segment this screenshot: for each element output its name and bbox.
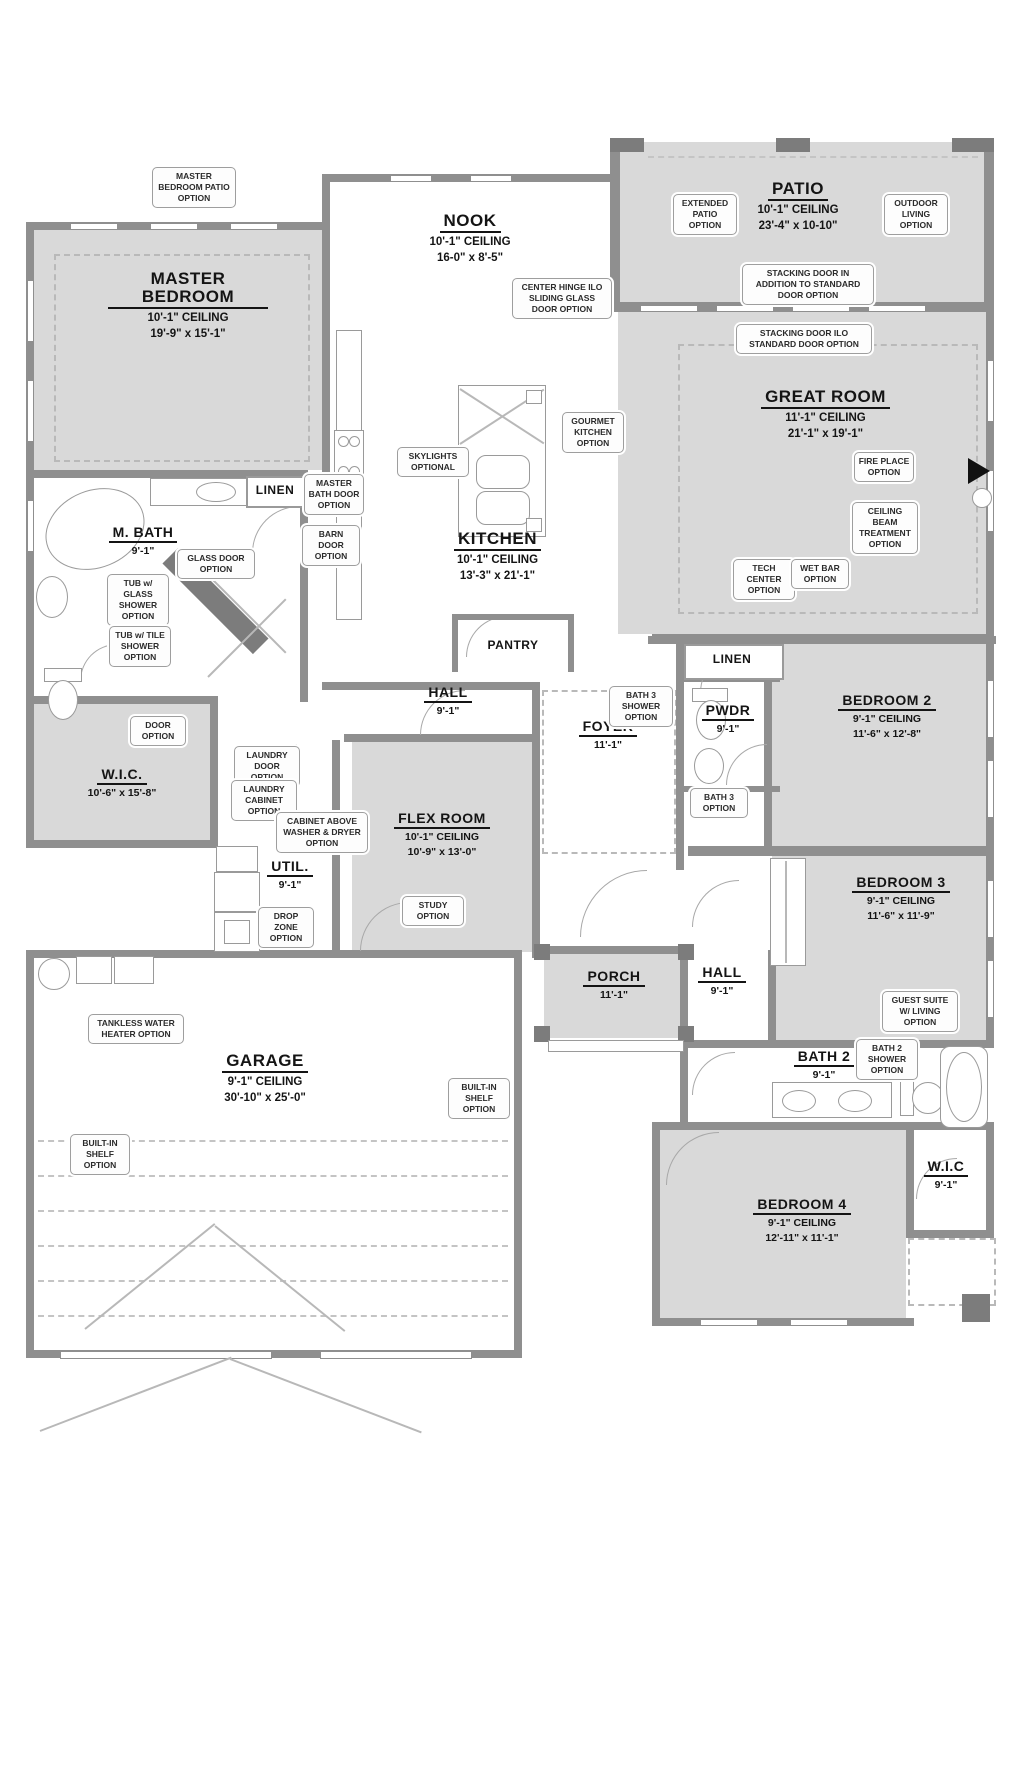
callout-bath2-shower-option: BATH 2 SHOWER OPTION (856, 1039, 918, 1080)
window (390, 175, 432, 182)
room-dims: 11'-6" x 12'-8" (812, 728, 962, 741)
room-name: BATH 2 (794, 1049, 855, 1067)
room-name: PATIO (768, 180, 828, 201)
room-ceiling: 9'-1" (684, 985, 760, 998)
wall-segment (210, 696, 218, 846)
garage-door (320, 1351, 472, 1359)
room-ceiling: 11'-1" CEILING (738, 411, 913, 425)
callout-tub-tile-shower-option: TUB w/ TILE SHOWER OPTION (109, 626, 171, 667)
window (470, 175, 512, 182)
callout-bath3-option: BATH 3 OPTION (690, 788, 748, 818)
room-name: BEDROOM 3 (852, 875, 949, 893)
callout-master-bath-door-option: MASTER BATH DOOR OPTION (304, 474, 364, 515)
wall-segment (676, 640, 684, 870)
room-name: FLEX ROOM (394, 811, 490, 829)
callout-skylights-option: SKYLIGHTS OPTIONAL (397, 447, 469, 477)
door-arc (252, 506, 299, 553)
room-ceiling: 9'-1" CEILING (722, 1217, 882, 1230)
room-dims: 21'-1" x 19'-1" (738, 427, 913, 441)
room-ceiling: 10'-1" CEILING (420, 553, 575, 567)
room-label-util: UTIL. 9'-1" (248, 858, 332, 892)
sliding-door (792, 305, 850, 312)
wall-segment (688, 846, 994, 856)
room-label-pantry: PANTRY (458, 636, 568, 654)
room-ceiling: 10'-1" CEILING (722, 203, 874, 217)
callout-guest-suite-option: GUEST SUITE W/ LIVING OPTION (882, 991, 958, 1032)
room-ceiling: 9'-1" CEILING (826, 895, 976, 908)
sink (36, 576, 68, 618)
closet-rod (785, 861, 787, 963)
room-name: NOOK (440, 212, 501, 233)
burner (338, 436, 349, 447)
callout-outdoor-living-option: OUTDOOR LIVING OPTION (884, 194, 948, 235)
callout-cabinet-washer-option: CABINET ABOVE WASHER & DRYER OPTION (276, 812, 368, 853)
callout-gourmet-kitchen-option: GOURMET KITCHEN OPTION (562, 412, 624, 453)
wall-segment (652, 1126, 660, 1326)
sliding-door (640, 305, 698, 312)
window (987, 880, 994, 938)
porch-column (534, 944, 550, 960)
wall-segment (514, 950, 522, 1358)
window (27, 380, 34, 442)
wall-segment (26, 840, 218, 848)
room-ceiling: 9'-1" CEILING (180, 1075, 350, 1089)
room-label-linen-hall: LINEN (688, 650, 776, 668)
window (230, 223, 278, 230)
room-name: BEDROOM 4 (753, 1197, 850, 1215)
wall-segment (532, 682, 540, 958)
callout-drop-zone-option: DROP ZONE OPTION (258, 907, 314, 948)
room-ceiling: 11'-1" (566, 989, 662, 1002)
window (790, 1319, 848, 1326)
room-label-bedroom3: BEDROOM 3 9'-1" CEILING 11'-6" x 11'-9" (826, 874, 976, 923)
room-dims: 11'-6" x 11'-9" (826, 910, 976, 923)
callout-glass-door-option: GLASS DOOR OPTION (177, 549, 255, 579)
bedroom2-area (772, 644, 986, 846)
room-name: HALL (424, 685, 471, 703)
window (27, 500, 34, 552)
door-arc (580, 870, 647, 937)
room-name: PWDR (702, 703, 755, 721)
callout-barn-door-option: BARN DOOR OPTION (302, 525, 360, 566)
closet (770, 858, 806, 966)
wall-segment (648, 636, 996, 644)
toilet (48, 680, 78, 720)
sink (694, 748, 724, 784)
room-ceiling: 9'-1" CEILING (812, 713, 962, 726)
callout-master-patio-option: MASTER BEDROOM PATIO OPTION (152, 167, 236, 208)
floor-plan: MASTER BEDROOM 10'-1" CEILING 19'-9" x 1… (0, 0, 1024, 1787)
room-label-bedroom2: BEDROOM 2 9'-1" CEILING 11'-6" x 12'-8" (812, 692, 962, 741)
island-sink (476, 455, 530, 489)
callout-extended-patio-option: EXTENDED PATIO OPTION (673, 194, 737, 235)
window (987, 680, 994, 738)
section-marker-arrow (968, 458, 990, 484)
room-ceiling: 9'-1" (686, 723, 770, 736)
wall-segment (322, 178, 330, 478)
patio-pillar (952, 138, 994, 152)
sink (196, 482, 236, 502)
room-name: GREAT ROOM (761, 388, 890, 409)
wall-segment (652, 1318, 914, 1326)
callout-stacking-addition-option: STACKING DOOR IN ADDITION TO STANDARD DO… (742, 264, 874, 305)
section-marker-circle (972, 488, 992, 508)
room-dims: 13'-3" x 21'-1" (420, 569, 575, 583)
callout-bath3-shower-option: BATH 3 SHOWER OPTION (609, 686, 673, 727)
island-sink (476, 491, 530, 525)
callout-center-hinge-option: CENTER HINGE ILO SLIDING GLASS DOOR OPTI… (512, 278, 612, 319)
wall-segment (986, 1126, 994, 1238)
sliding-door (868, 305, 926, 312)
room-name: BEDROOM 2 (838, 693, 935, 711)
sink (782, 1090, 816, 1112)
room-label-linen-master: LINEN (248, 481, 302, 499)
window (700, 1319, 758, 1326)
driveway-line (38, 1175, 508, 1177)
room-label-patio: PATIO 10'-1" CEILING 23'-4" x 10-10" (722, 180, 874, 234)
room-label-porch: PORCH 11'-1" (566, 968, 662, 1002)
wall-segment (452, 614, 574, 620)
room-label-flex-room: FLEX ROOM 10'-1" CEILING 10'-9" x 13'-0" (372, 810, 512, 859)
room-label-kitchen: KITCHEN 10'-1" CEILING 13'-3" x 21'-1" (420, 530, 575, 584)
callout-tankless-option: TANKLESS WATER HEATER OPTION (88, 1014, 184, 1044)
sliding-door (716, 305, 774, 312)
callout-door-option: DOOR OPTION (130, 716, 186, 746)
room-label-nook: NOOK 10'-1" CEILING 16-0" x 8'-5" (395, 212, 545, 266)
room-name: M. BATH (109, 525, 178, 543)
wall-segment (568, 614, 574, 672)
bathtub-inner (946, 1052, 982, 1122)
room-name: W.I.C (924, 1159, 969, 1177)
door-arc (726, 744, 767, 785)
driveway-line (38, 1245, 508, 1247)
burner (349, 436, 360, 447)
patio-pillar (610, 138, 644, 152)
room-label-pwdr: PWDR 9'-1" (686, 702, 770, 736)
room-dims: 16-0" x 8'-5" (395, 251, 545, 265)
window (150, 223, 198, 230)
window (987, 960, 994, 1018)
wall-segment (906, 1230, 994, 1238)
callout-builtin-shelf-left-option: BUILT-IN SHELF OPTION (70, 1134, 130, 1175)
room-name: LINEN (709, 653, 756, 667)
driveway-line (38, 1280, 508, 1282)
room-name: GARAGE (222, 1052, 308, 1073)
driveway-line (38, 1315, 508, 1317)
room-name: PORCH (583, 969, 644, 987)
room-ceiling: 11'-1" (558, 739, 658, 752)
room-dims: 10'-6" x 15'-8" (52, 787, 192, 800)
room-ceiling: 10'-1" CEILING (372, 831, 512, 844)
driveway-line (38, 1210, 508, 1212)
room-ceiling: 9'-1" (400, 705, 496, 718)
room-label-hall-bed: HALL 9'-1" (684, 964, 760, 998)
callout-stacking-ilo-option: STACKING DOOR ILO STANDARD DOOR OPTION (736, 324, 872, 354)
island-corner (526, 390, 542, 404)
room-name: MASTER BEDROOM (108, 270, 268, 309)
hatch-square (962, 1294, 990, 1322)
room-dims: 23'-4" x 10-10" (722, 219, 874, 233)
room-dims: 12'-11" x 11'-1" (722, 1232, 882, 1245)
room-name: PANTRY (484, 639, 543, 653)
patio-edge-dashed (648, 156, 978, 158)
door-arc (692, 880, 739, 927)
driveway-apex-line (40, 1357, 232, 1432)
room-label-hall-center: HALL 9'-1" (400, 684, 496, 718)
wall-segment (344, 734, 540, 742)
window (987, 360, 994, 422)
room-ceiling: 9'-1" (248, 879, 332, 892)
patio-pillar (776, 138, 810, 152)
room-ceiling: 10'-1" CEILING (395, 235, 545, 249)
sink (838, 1090, 872, 1112)
callout-tech-center-option: TECH CENTER OPTION (733, 559, 795, 600)
wall-segment (26, 950, 34, 1358)
callout-wet-bar-option: WET BAR OPTION (791, 559, 849, 589)
room-label-bedroom4: BEDROOM 4 9'-1" CEILING 12'-11" x 11'-1" (722, 1196, 882, 1245)
room-name: LINEN (252, 484, 299, 498)
dryer-drum (224, 920, 250, 944)
room-label-garage: GARAGE 9'-1" CEILING 30'-10" x 25'-0" (180, 1052, 350, 1106)
room-label-wic-bed4: W.I.C 9'-1" (908, 1158, 984, 1192)
callout-ceiling-beam-option: CEILING BEAM TREATMENT OPTION (852, 502, 918, 554)
callout-fireplace-option: FIRE PLACE OPTION (854, 452, 914, 482)
porch-column (678, 944, 694, 960)
room-ceiling: 10'-1" CEILING (108, 311, 268, 325)
equipment-box (114, 956, 154, 984)
porch-step (548, 1040, 684, 1052)
window (27, 280, 34, 342)
room-label-wic-master: W.I.C. 10'-6" x 15'-8" (52, 766, 192, 800)
equipment-box (76, 956, 112, 984)
room-name: W.I.C. (97, 767, 146, 785)
wall-segment (538, 946, 694, 954)
room-dims: 19'-9" x 15'-1" (108, 327, 268, 341)
callout-study-option: STUDY OPTION (402, 896, 464, 926)
window (987, 760, 994, 818)
water-heater (38, 958, 70, 990)
room-ceiling: 9'-1" (908, 1179, 984, 1192)
room-dims: 30'-10" x 25'-0" (180, 1091, 350, 1105)
room-name: HALL (698, 965, 745, 983)
garage-door (60, 1351, 272, 1359)
wall-segment (984, 140, 994, 312)
driveway-apex-line (84, 1223, 215, 1330)
door-arc (692, 1052, 735, 1095)
room-name: KITCHEN (454, 530, 541, 551)
callout-builtin-shelf-garage-option: BUILT-IN SHELF OPTION (448, 1078, 510, 1119)
room-name: UTIL. (267, 859, 313, 877)
window (70, 223, 118, 230)
room-label-master-bedroom: MASTER BEDROOM 10'-1" CEILING 19'-9" x 1… (108, 270, 268, 341)
room-label-great-room: GREAT ROOM 11'-1" CEILING 21'-1" x 19'-1… (738, 388, 913, 442)
driveway-apex-line (230, 1358, 422, 1433)
room-dims: 10'-9" x 13'-0" (372, 846, 512, 859)
callout-tub-glass-shower-option: TUB w/ GLASS SHOWER OPTION (107, 574, 169, 626)
